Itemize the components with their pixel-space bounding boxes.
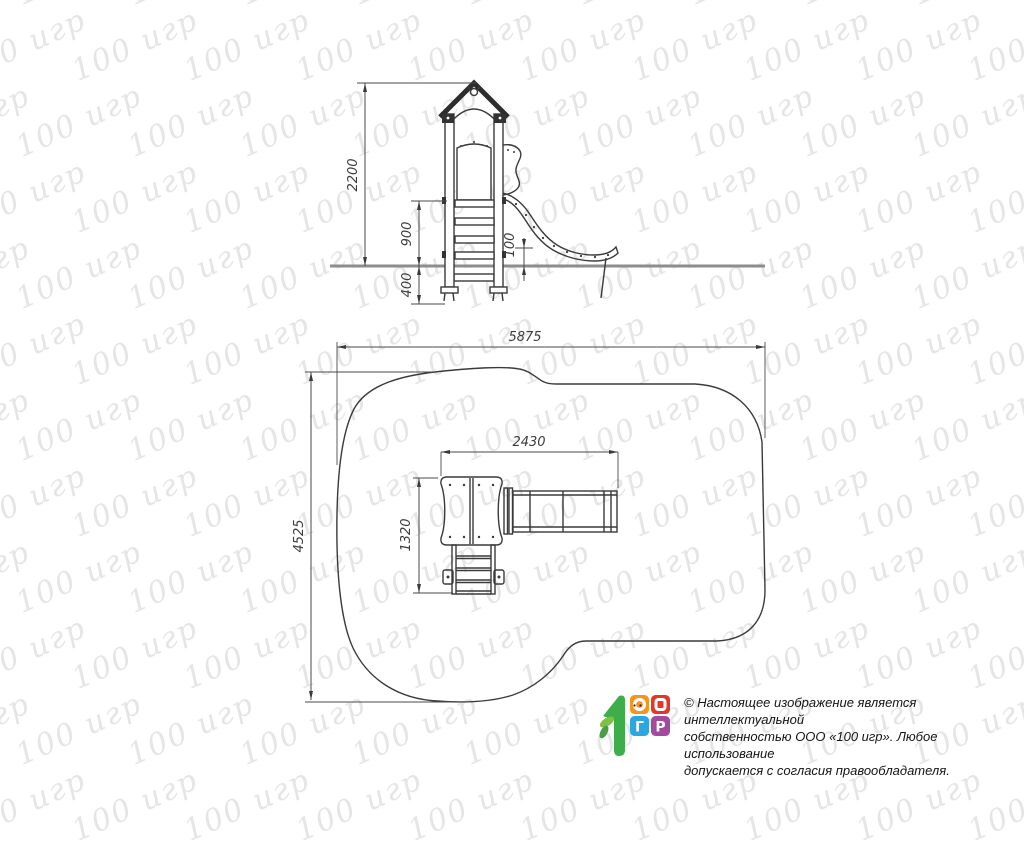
logo-dot [639, 704, 641, 706]
slide-elevation [503, 193, 618, 298]
slide-profile [503, 193, 618, 261]
slide-support-leg [601, 258, 606, 298]
watermark-text: 100 игр [67, 762, 204, 849]
elevation-view: 2200 900 400 100 [330, 83, 765, 304]
tower-elevation [440, 83, 508, 301]
logo-letter-g: Г [635, 720, 644, 736]
eave-bolt [499, 117, 502, 120]
watermark-text: 100 игр [403, 762, 540, 849]
post-foot-left [441, 287, 458, 293]
bolt [486, 145, 488, 147]
logo-100igr: Г Р [598, 688, 678, 760]
bolt [507, 149, 509, 151]
anchor-tick [502, 293, 503, 301]
foundation-crossbar [454, 274, 494, 281]
logo-letter-r-tile: Р [651, 716, 670, 736]
plan-view: 5875 4525 2430 1320 [292, 330, 765, 702]
roof-arch [451, 109, 497, 122]
watermark-text: 100 игр [179, 762, 316, 849]
ladder-rungs [455, 200, 494, 259]
logo-letter-r: Р [655, 720, 665, 736]
copyright-text: © Настоящее изображение является интелле… [684, 694, 1014, 779]
slide-plan [504, 488, 617, 534]
dim-slide-end-height: 100 [503, 233, 518, 258]
logo-dot [633, 704, 635, 706]
dim-foundation-depth: 400 [400, 273, 415, 298]
logo-zero-orange [630, 695, 649, 714]
anchor-tick [493, 293, 494, 301]
footer: Г Р © Настоящее изображение является инт… [598, 688, 1018, 763]
watermark-text: 100 игр [291, 762, 428, 849]
post-bracket [442, 251, 446, 258]
eave-bolt [447, 117, 450, 120]
logo-zero-red [651, 695, 670, 714]
platform-plan [441, 477, 502, 545]
post-foot-right [490, 287, 507, 293]
logo-graphic: Г Р [598, 688, 678, 760]
bolt [473, 141, 475, 143]
anchor-tick [444, 293, 445, 301]
tower-wall-panel [457, 144, 491, 200]
anchor-tick [453, 293, 454, 301]
bolt [513, 151, 515, 153]
watermark-text: 100 игр [0, 762, 92, 849]
dim-platform-height: 900 [400, 222, 415, 247]
copyright-line: собственностью ООО «100 игр». Любое испо… [684, 728, 1014, 762]
dim-equipment-length: 2430 [512, 435, 545, 450]
logo-letter-g-tile: Г [630, 716, 649, 736]
roof-finial-dot [468, 87, 470, 89]
watermark-text: 100 игр [515, 762, 652, 849]
dim-zone-width: 4525 [292, 519, 307, 552]
roof-finial-dot [478, 87, 480, 89]
tower-post-right [494, 114, 503, 287]
copyright-line: допускается с согласия правообладателя. [684, 762, 1014, 779]
tower-post-left [445, 114, 454, 287]
dim-total-height: 2200 [346, 158, 361, 191]
leaf-icon [598, 724, 610, 740]
dim-zone-length: 5875 [508, 330, 541, 345]
roof-finial [471, 89, 478, 96]
dim-equipment-width: 1320 [399, 518, 414, 551]
slide-guard-panel [503, 145, 521, 195]
post-bracket [442, 197, 446, 204]
ladder-plan [443, 545, 504, 594]
bolt [460, 145, 462, 147]
copyright-line: © Настоящее изображение является интелле… [684, 694, 1014, 728]
technical-drawing: 2200 900 400 100 [0, 0, 1024, 768]
logo-digit-one [598, 696, 625, 757]
plan-dimensions: 5875 4525 2430 1320 [292, 330, 765, 702]
